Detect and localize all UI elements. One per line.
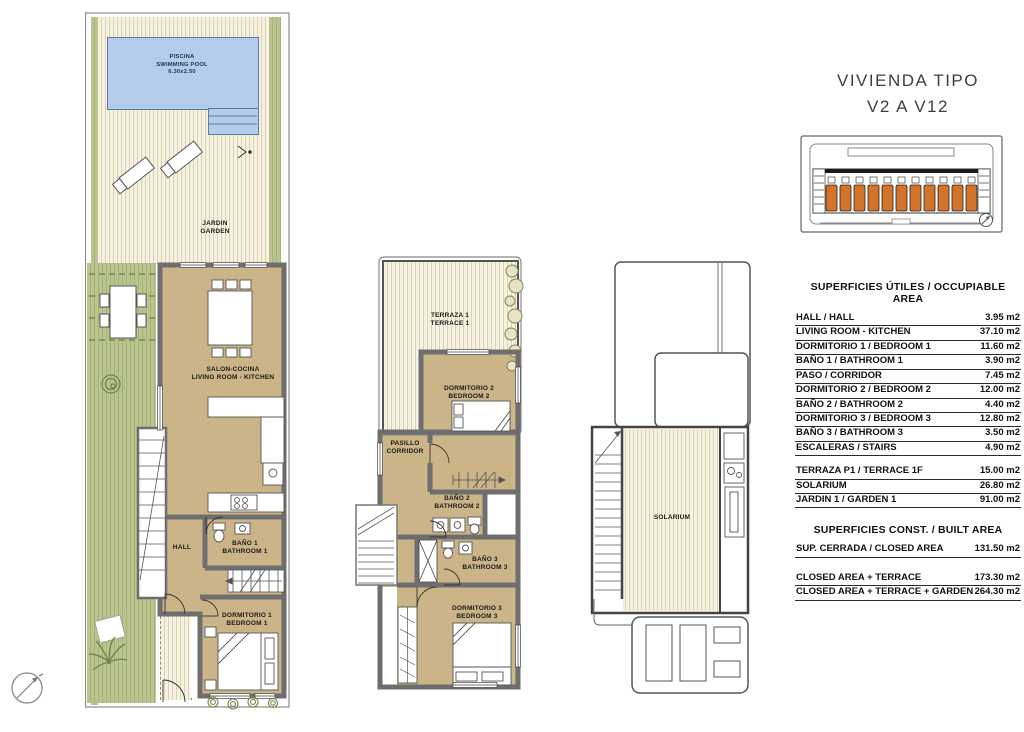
area-row-label: SOLARIUM: [796, 481, 847, 492]
key-highlighted-units: [826, 177, 977, 211]
area-row-label: LIVING ROOM - KITCHEN: [796, 327, 911, 338]
built-area-header: SUPERFICIES CONST. / BUILT AREA: [795, 524, 1021, 536]
title-line1: VIVIENDA TIPO: [795, 68, 1021, 94]
area-table-row: CLOSED AREA + TERRACE 173.30 m2: [795, 572, 1021, 586]
area-table-row: CLOSED AREA + TERRACE + GARDEN 264.30 m2: [795, 586, 1021, 600]
living-room-label: SALON-COCINALIVING ROOM - KITCHEN: [192, 366, 275, 383]
closed-area-table: SUP. CERRADA / CLOSED AREA 131.50 m2: [795, 543, 1021, 557]
area-row-label: BAÑO 2 / BATHROOM 2: [796, 400, 903, 411]
wardrobe: [398, 607, 417, 683]
area-row-label: CLOSED AREA + TERRACE: [796, 573, 921, 584]
site-key-plan: [800, 135, 1003, 234]
roof-outline-terrace: [655, 353, 748, 427]
bed1: [205, 627, 278, 690]
area-table-row: HALL / HALL 3.95 m2: [795, 312, 1021, 326]
corridor-label: PASILLOCORRIDOR: [387, 440, 424, 457]
area-row-value: 131.50 m2: [975, 544, 1020, 555]
area-table-row: BAÑO 1 / BATHROOM 1 3.90 m2: [795, 355, 1021, 369]
stair-opening-symbol: [453, 472, 505, 488]
area-row-value: 3.90 m2: [985, 356, 1020, 367]
area-row-label: BAÑO 3 / BATHROOM 3: [796, 428, 903, 439]
area-row-value: 7.45 m2: [985, 371, 1020, 382]
title-line2: V2 A V12: [795, 94, 1021, 120]
solarium-label: SOLARIUM: [654, 514, 690, 522]
north-arrow-icon: [8, 666, 52, 710]
solarium-stairs: [595, 431, 621, 590]
area-row-label: SUP. CERRADA / CLOSED AREA: [796, 544, 943, 555]
area-row-label: DORMITORIO 3 / BEDROOM 3: [796, 414, 931, 425]
bed3: [453, 623, 511, 685]
area-table-row: SUP. CERRADA / CLOSED AREA 131.50 m2: [795, 543, 1021, 557]
bathroom2-label: BAÑO 2BATHROOM 2: [434, 495, 479, 512]
plan-sheet: PISCINA SWIMMING POOL 6.30x2.50 JARDINGA…: [0, 0, 1024, 732]
area-table-row: SOLARIUM 26.80 m2: [795, 480, 1021, 494]
area-row-value: 15.00 m2: [980, 466, 1020, 477]
area-table-row: ESCALERAS / STAIRS 4.90 m2: [795, 442, 1021, 456]
area-row-label: ESCALERAS / STAIRS: [796, 443, 897, 454]
area-row-value: 12.00 m2: [980, 385, 1020, 396]
pool-step-lines: [209, 116, 257, 124]
staircase-box: [138, 428, 166, 598]
key-north-arrow-icon: [980, 214, 993, 227]
area-row-value: 3.50 m2: [985, 428, 1020, 439]
first-floor-plan: TERRAZA 1TERRACE 1 DORMITORIO 2BEDROOM 2…: [355, 255, 535, 705]
useful-area-table: HALL / HALL 3.95 m2 LIVING ROOM - KITCHE…: [795, 312, 1021, 456]
bathroom1-label: BAÑO 1BATHROOM 1: [222, 540, 267, 557]
bath2-fixtures: [433, 517, 481, 534]
area-row-value: 173.30 m2: [975, 573, 1020, 584]
area-table-row: BAÑO 2 / BATHROOM 2 4.40 m2: [795, 399, 1021, 413]
area-row-label: CLOSED AREA + TERRACE + GARDEN: [796, 587, 973, 598]
garden-table: [100, 286, 146, 338]
kitchen-counter: [208, 397, 284, 512]
area-table-row: LIVING ROOM - KITCHEN 37.10 m2: [795, 326, 1021, 340]
area-row-label: JARDIN 1 / GARDEN 1: [796, 495, 896, 506]
area-row-value: 4.90 m2: [985, 443, 1020, 454]
area-row-label: DORMITORIO 2 / BEDROOM 2: [796, 385, 931, 396]
area-row-label: DORMITORIO 1 / BEDROOM 1: [796, 342, 931, 353]
useful-area-header: SUPERFICIES ÚTILES / OCCUPIABLE AREA: [795, 281, 1021, 305]
first-floor-staircase: [356, 505, 397, 585]
bedroom2-label: DORMITORIO 2BEDROOM 2: [444, 385, 494, 402]
dining-table: [208, 280, 252, 357]
bedroom1-label: DORMITORIO 1BEDROOM 1: [222, 612, 272, 629]
area-table-row: JARDIN 1 / GARDEN 1 91.00 m2: [795, 494, 1021, 508]
bed2: [452, 401, 510, 431]
area-row-value: 91.00 m2: [980, 495, 1020, 506]
north-mark-icon: [238, 146, 251, 158]
ground-floor-plan: PISCINA SWIMMING POOL 6.30x2.50 JARDINGA…: [85, 12, 290, 710]
hall-label: HALL: [173, 544, 191, 552]
area-table-row: TERRAZA P1 / TERRACE 1F 15.00 m2: [795, 465, 1021, 479]
area-row-value: 4.40 m2: [985, 400, 1020, 411]
solarium-plan: SOLARIUM: [590, 255, 758, 710]
area-row-label: TERRAZA P1 / TERRACE 1F: [796, 466, 923, 477]
area-table-row: DORMITORIO 2 / BEDROOM 2 12.00 m2: [795, 384, 1021, 398]
ground-floor-linework: [85, 12, 290, 710]
area-table-row: DORMITORIO 3 / BEDROOM 3 12.80 m2: [795, 413, 1021, 427]
sheet-title: VIVIENDA TIPO V2 A V12: [795, 68, 1021, 121]
area-row-value: 37.10 m2: [980, 327, 1020, 338]
stair-flight: [226, 570, 284, 592]
sun-loungers: [112, 141, 203, 195]
area-table-row: PASO / CORRIDOR 7.45 m2: [795, 370, 1021, 384]
area-row-value: 264.30 m2: [975, 587, 1020, 598]
solarium-kitchen: [724, 433, 744, 537]
pool-label: PISCINA SWIMMING POOL 6.30x2.50: [156, 54, 208, 77]
area-row-label: HALL / HALL: [796, 313, 854, 324]
total-area-table: CLOSED AREA + TERRACE 173.30 m2 CLOSED A…: [795, 572, 1021, 601]
area-table-row: BAÑO 3 / BATHROOM 3 3.50 m2: [795, 427, 1021, 441]
area-tables: SUPERFICIES ÚTILES / OCCUPIABLE AREA HAL…: [795, 281, 1021, 601]
solarium-linework: [590, 255, 758, 710]
site-key-linework: [800, 135, 1003, 234]
bedroom3-label: DORMITORIO 3BEDROOM 3: [452, 605, 502, 622]
area-table-row: DORMITORIO 1 / BEDROOM 1 11.60 m2: [795, 341, 1021, 355]
outdoor-area-table: TERRAZA P1 / TERRACE 1F 15.00 m2 SOLARIU…: [795, 465, 1021, 508]
area-row-value: 3.95 m2: [985, 313, 1020, 324]
terrace-label: TERRAZA 1TERRACE 1: [431, 312, 470, 329]
area-row-value: 26.80 m2: [980, 481, 1020, 492]
area-row-label: BAÑO 1 / BATHROOM 1: [796, 356, 903, 367]
area-row-label: PASO / CORRIDOR: [796, 371, 882, 382]
garden-label: JARDINGARDEN: [200, 220, 229, 237]
area-row-value: 11.60 m2: [980, 342, 1020, 353]
shrub-spiral: [102, 375, 120, 393]
palm-plant: [89, 615, 127, 670]
area-row-value: 12.80 m2: [980, 414, 1020, 425]
bathroom3-label: BAÑO 3BATHROOM 3: [462, 556, 507, 573]
